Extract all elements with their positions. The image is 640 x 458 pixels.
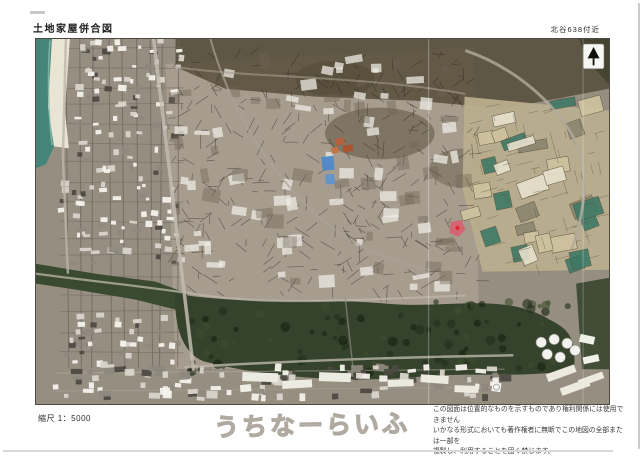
scale-label: 縮尺 1：5000 [38, 413, 91, 424]
disclaimer-line: 複製し、利用することを固く禁じます。 [433, 447, 625, 458]
document-title: 土地家屋併合図 [33, 20, 114, 35]
location-label: 北谷638付近 [550, 24, 600, 35]
aerial-map [36, 39, 609, 404]
scanned-page: 土地家屋併合図 北谷638付近 縮尺 1：5000 うちなーらいふ この図面は位… [0, 0, 640, 452]
north-arrow-icon [583, 44, 604, 69]
scan-artifact [30, 11, 45, 14]
disclaimer-line: いかなる形式においても著作権者に無断でこの地図の全部または一部を [433, 426, 625, 447]
map-frame [35, 38, 610, 405]
disclaimer-line: この図面は位置的なものを示すものであり権利関係には使用できません [433, 405, 625, 426]
